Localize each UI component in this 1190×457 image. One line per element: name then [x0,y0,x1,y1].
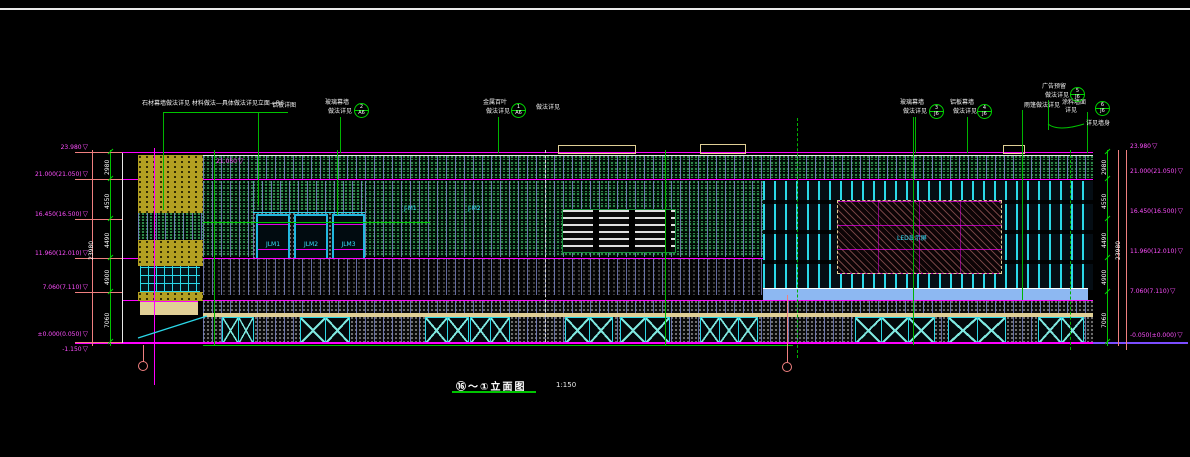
elevation-marker-left: 7.060(7.110)▽ [30,284,88,291]
level-symbol-icon: ▽ [238,157,243,165]
sill-line [253,212,365,213]
elevation-marker-left: 11.960(12.010)▽ [30,250,88,257]
elevation-value: 7.060(7.110) [1130,288,1169,295]
material-note-6a: 铝板幕墙 [950,100,974,107]
elevation-value: 23.980 [61,144,82,151]
door-leaf [621,318,645,343]
door-leaf [589,318,613,343]
entrance-doors-1 [222,317,254,344]
door-leaf [881,318,907,343]
entrance-doors-9 [948,317,1006,344]
dim-tick-row [75,292,122,293]
elevation-marker-right: 16.450(16.500)▽ [1130,208,1183,215]
entrance-doors-5 [565,317,613,344]
side-canopy [140,301,198,315]
top-border-line [0,8,1190,10]
door-leaf [426,318,447,343]
dim-value: 2980 [1101,160,1108,175]
bubble-sheet: A6 [355,110,368,116]
elevation-marker-inner: 21.050▽ [216,158,243,165]
material-note-9b: 详见 [1065,108,1077,115]
axis-line-5 [913,117,914,345]
entrance-doors-7 [700,317,758,344]
leader-line-5 [915,117,916,153]
window-label: JLM1 [266,242,280,248]
elevation-value: 16.450(16.500) [35,211,82,218]
elevation-value: 11.960(12.010) [1130,248,1177,255]
bubble-sheet: J6 [978,111,991,117]
elevation-value: 21.000(21.050) [35,171,82,178]
dim-tick-row [75,219,122,220]
entrance-doors-2 [300,317,350,344]
elevation-marker-left: 16.450(16.500)▽ [30,211,88,218]
leader-line-3 [340,117,341,153]
axis-line-4 [665,150,666,345]
material-note-6b: 做法详见 [953,109,977,116]
material-note-3a: 玻璃幕墙 [325,100,349,107]
parapet-detail-box-1 [558,145,636,154]
axis-line-dashed-2 [1070,150,1071,350]
dim-value: 4900 [104,270,111,285]
leader-line-6 [967,117,968,153]
elevation-value: 7.060(7.110) [43,284,82,291]
storefront-header [203,301,1093,313]
material-note-10: 详见墙身 [1086,121,1110,128]
door-leaf [566,318,589,343]
door-leaf [856,318,881,343]
dim-value: 7060 [1101,313,1108,328]
material-note-3b: 做法详见 [328,109,352,116]
elevation-marker-right: -0.050(±0.000)▽ [1130,332,1183,339]
green-sill-line [203,222,430,223]
window-label: JLM3 [341,242,355,248]
level-symbol-icon: ▽ [83,170,88,178]
cad-elevation-canvas: JLM1 JLM2 JLM3 J-M1 J-M2 LED显示屏 [0,0,1190,457]
window-label: JLM2 [304,242,318,248]
door-leaf [325,318,350,343]
door-leaf [949,318,977,343]
panel-grid-left [203,181,253,257]
door-leaf [738,318,757,343]
glazing-zone-top [253,181,365,211]
leader-line-2 [258,112,259,205]
axis-line-dashed-1 [797,118,798,358]
elevation-value: 21.000(21.050) [1130,168,1177,175]
stair-tower-window-band [138,213,203,240]
door-leaf [977,318,1006,343]
stair-tower-mid [138,240,203,266]
door-leaf [490,318,510,343]
door-leaf [301,318,325,343]
dim-tick-row [75,342,122,343]
leader-line-4 [498,117,499,153]
material-note-7: 雨篷做法详见 [1024,103,1060,110]
stair-tower-lower [138,292,203,301]
detail-bubble-2: 1A6 [511,103,526,118]
building-left-edge [122,153,123,343]
bubble-sheet: J6 [1071,94,1084,100]
axis-line-magenta [154,148,155,385]
dim-value: 4490 [104,233,111,248]
level-symbol-icon: ▽ [83,345,88,353]
elevation-value: -1.150 [62,346,81,353]
elevation-value: ±0.000(0.050) [38,331,82,338]
door-leaf [447,318,469,343]
door-leaf [238,318,254,343]
elevation-marker-left: -1.150▽ [30,346,88,353]
section-line-right [787,295,788,362]
elevation-marker-left: 21.000(21.050)▽ [30,171,88,178]
detail-bubble-3: 3J6 [929,104,944,119]
door-leaf [471,318,490,343]
material-note-8a: 广告预留 [1042,84,1066,91]
elevation-value: 23.980 [1130,143,1151,150]
parapet-detail-box-2 [700,144,746,154]
expansion-joint-line [545,150,546,342]
grade-line [203,345,793,346]
dim-tick-row [75,179,122,180]
detail-bubble-6: 6J6 [1095,101,1110,116]
door-leaf [1039,318,1061,343]
level-symbol-icon: ▽ [83,249,88,257]
leader-arm-1 [163,112,258,113]
drawing-scale: 1:150 [556,381,576,389]
dim-total-left: 23980 [88,241,95,260]
level-symbol-icon: ▽ [83,210,88,218]
level-symbol-icon: ▽ [83,330,88,338]
level-symbol-icon: ▽ [1178,167,1183,175]
louver-panel [562,209,676,253]
elevation-marker-left: ±0.000(0.050)▽ [30,331,88,338]
dim-value: 4490 [1101,233,1108,248]
level-symbol-icon: ▽ [1178,207,1183,215]
elevation-marker-right: 11.960(12.010)▽ [1130,248,1183,255]
elevation-marker-left: 23.980▽ [30,144,88,151]
dim-line-right-outer [1126,150,1127,350]
elevation-marker-right: 7.060(7.110)▽ [1130,288,1175,295]
glass-label-1: J-M1 [404,205,417,212]
dim-value: 7060 [104,313,111,328]
axis-line-3 [337,150,338,215]
material-note-5b: 做法详见 [903,109,927,116]
title-underline [452,391,536,393]
glass-label-2: J-M2 [468,205,481,212]
elevation-value: 16.450(16.500) [1130,208,1177,215]
level-symbol-icon: ▽ [1177,331,1182,339]
axis-line-2 [214,150,215,345]
level-symbol-icon: ▽ [1178,247,1183,255]
axis-line-6 [1022,110,1023,300]
dim-value: 4900 [1101,270,1108,285]
elevation-marker-right: 21.000(21.050)▽ [1130,168,1183,175]
detail-bubble-5: 5J6 [1070,87,1085,102]
dim-total-right: 23980 [1115,241,1122,260]
dim-tick-row [75,152,122,153]
spandrel-band [203,258,763,295]
dim-value: 4550 [1101,194,1108,209]
dim-value: 2980 [104,160,111,175]
led-label: LED显示屏 [897,233,927,242]
elevation-value: 21.050 [216,158,237,165]
entrance-doors-6 [620,317,670,344]
entrance-doors-8 [855,317,935,344]
leader-line-1 [163,112,164,210]
dim-value: 4550 [104,194,111,209]
section-line-left [143,345,144,362]
material-note-4b: 做法详见 [486,109,510,116]
leader-arm-2 [258,112,288,113]
bubble-sheet: J6 [930,111,943,117]
detail-bubble-4: 4J6 [977,104,992,119]
material-note-1: 石材幕墙做法详见 材料做法—具体做法详见立面—R6 [142,101,284,108]
elevation-value: 11.960(12.010) [35,250,82,257]
door-leaf [719,318,738,343]
door-leaf [908,318,934,343]
door-leaf [701,318,719,343]
material-note-2: 铝板详图 [272,103,296,110]
elevation-marker-right: 23.980▽ [1130,143,1157,150]
door-leaf [223,318,238,343]
stair-tower-glazing [140,266,200,292]
level-symbol-icon: ▽ [1152,142,1157,150]
level-symbol-icon: ▽ [1170,287,1175,295]
bubble-sheet: A6 [512,110,525,116]
door-leaf [1061,318,1084,343]
entrance-doors-3 [425,317,469,344]
detail-bubble-1: 2A6 [354,103,369,118]
material-note-4c: 做法详见 [536,105,560,112]
dim-tick-row [75,258,122,259]
entrance-doors-4 [470,317,510,344]
level-symbol-icon: ▽ [83,143,88,151]
bubble-sheet: J6 [1096,108,1109,114]
entrance-doors-10 [1038,317,1084,344]
material-note-5a: 玻璃幕墙 [900,100,924,107]
elevation-value: -0.050(±0.000) [1130,332,1176,339]
ground-line [75,342,1105,344]
stair-tower-upper [138,155,203,213]
level-symbol-icon: ▽ [83,283,88,291]
leader-line-8 [1087,112,1088,153]
material-note-4a: 金属百叶 [483,100,507,107]
level-line-21000 [122,179,1093,180]
